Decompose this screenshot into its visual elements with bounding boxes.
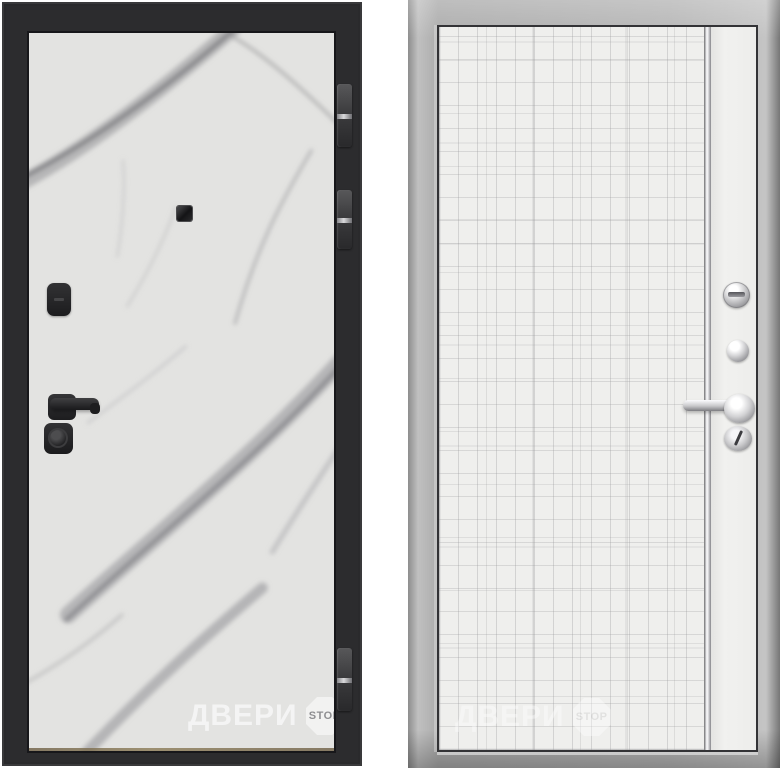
cylinder-lock-icon (44, 423, 73, 454)
keyhole-icon (724, 426, 752, 451)
handle-rosette-icon (724, 394, 755, 423)
hinge-bottom-icon (337, 648, 352, 711)
marble-panel: ДВЕРИ STOP (27, 31, 336, 753)
right-door[interactable]: ДВЕРИ STOP (408, 0, 780, 768)
hinge-top-icon (337, 84, 352, 147)
panel-stile (711, 27, 756, 750)
hinge-middle-icon (337, 190, 352, 249)
chrome-strip-icon (704, 27, 711, 750)
cylinder-ring-icon (48, 428, 68, 448)
marble-veins-graphic (29, 33, 334, 751)
knob-icon (727, 340, 749, 362)
thumb-turn-icon (723, 282, 750, 308)
left-door[interactable]: ДВЕРИ STOP (2, 2, 362, 766)
lever-handle-icon (50, 398, 99, 410)
doors-product-photo: ДВЕРИ STOP ДВЕРИ STOP (0, 0, 780, 768)
lock-cover-icon (47, 283, 71, 316)
peephole-icon (177, 206, 192, 221)
